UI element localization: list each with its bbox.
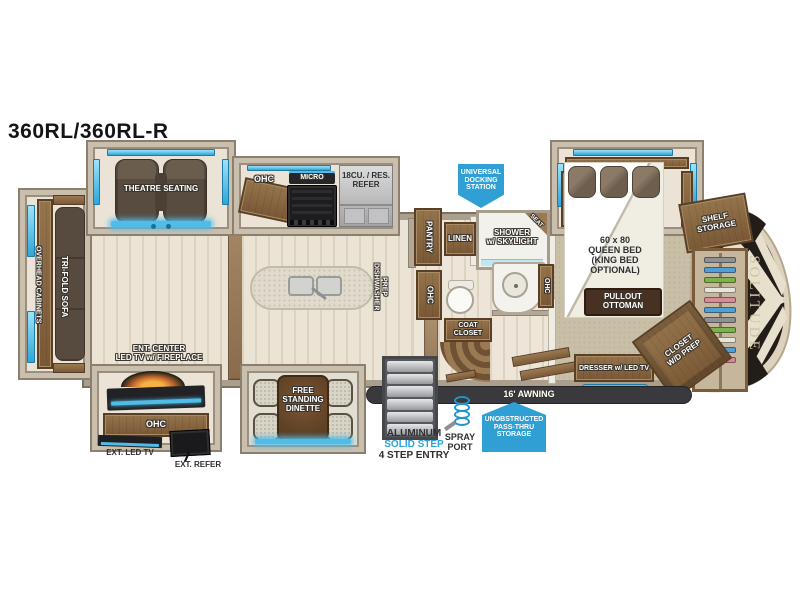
hall-ohc: OHC xyxy=(416,270,442,320)
dinette-label: FREE STANDING DINETTE xyxy=(271,387,335,413)
kitchen-slide: OHC MICRO 18CU. / RES. REFER xyxy=(234,158,398,234)
refer-split xyxy=(340,204,392,206)
micro-label: MICRO xyxy=(300,174,323,182)
shower: SEAT SHOWER w/ SKYLIGHT xyxy=(476,210,550,270)
hanger xyxy=(704,297,736,303)
bed-pillows xyxy=(568,166,660,198)
pillow xyxy=(600,166,628,198)
bath-drain xyxy=(514,284,518,288)
microwave: MICRO xyxy=(289,171,335,184)
step-tread xyxy=(387,412,433,423)
ext-led-tv-label: EXT. LED TV xyxy=(88,449,172,458)
docking-station-label: UNIVERSAL DOCKING STATION xyxy=(458,169,504,192)
bed-window-top xyxy=(573,149,673,156)
linen-cabinet: LINEN xyxy=(444,222,476,256)
refer-drawer xyxy=(368,208,389,224)
vanity-ohc-label: OHC xyxy=(542,278,550,294)
hanger xyxy=(704,307,736,313)
theatre-slide: THEATRE SEATING xyxy=(88,142,234,234)
dinette-slide: FREE STANDING DINETTE xyxy=(242,366,364,452)
passthru-storage-label: UNOBSTRUCTED PASS-THRU STORAGE xyxy=(482,416,546,439)
theatre-seating-label: THEATRE SEATING xyxy=(99,185,223,194)
theatre-opening-glow xyxy=(111,221,211,227)
cupholder xyxy=(151,224,156,229)
shelf-storage-label: SHELF STORAGE xyxy=(695,211,737,235)
step-tread xyxy=(387,399,433,410)
spray-port-label: SPRAY PORT xyxy=(436,432,484,452)
sink-left xyxy=(288,276,314,296)
floorplan: OVERHEAD CABINETS TRI-FOLD SOFA THEATRE … xyxy=(0,0,800,600)
linen-label: LINEN xyxy=(448,235,472,244)
hall-ohc-label: OHC xyxy=(425,286,434,304)
theatre-window-right xyxy=(222,159,229,205)
theatre-window-left xyxy=(93,159,100,205)
pillow xyxy=(568,166,596,198)
stove xyxy=(287,185,337,227)
step-tread xyxy=(387,374,433,385)
closet-wd-label: CLOSET W/D PREP xyxy=(661,331,703,368)
dinette-opening-glow xyxy=(255,439,351,444)
hanger xyxy=(704,317,736,323)
pantry: PANTRY xyxy=(414,208,442,266)
toilet xyxy=(446,280,476,316)
kitchen-island xyxy=(250,266,374,310)
rear-sofa-slide: OVERHEAD CABINETS TRI-FOLD SOFA xyxy=(20,190,90,378)
step-tread xyxy=(387,386,433,397)
pullout-ottoman-label: PULLOUT OTTOMAN xyxy=(603,293,643,311)
stove-grate xyxy=(292,190,332,216)
fireplace xyxy=(121,371,185,387)
stove-knobs xyxy=(290,220,334,225)
hanger xyxy=(704,277,736,283)
tv-screen xyxy=(111,398,201,405)
hanger xyxy=(704,267,736,273)
ext-refer-label: EXT. REFER xyxy=(158,461,238,470)
dishwasher-prep-label: DISHWASHER PREP xyxy=(372,252,394,322)
tri-fold-sofa-label: TRI-FOLD SOFA xyxy=(59,227,81,347)
spray-port-icon xyxy=(452,396,472,430)
ent-ohc-label: OHC xyxy=(146,420,166,430)
pantry-label: PANTRY xyxy=(424,221,433,253)
passthru-storage-badge: UNOBSTRUCTED PASS-THRU STORAGE xyxy=(482,402,546,452)
dresser-label: DRESSER w/ LED TV xyxy=(576,365,652,373)
coat-closet-label: COAT CLOSET xyxy=(454,322,482,337)
solitude-logo: SOLITUDE xyxy=(746,255,762,352)
page-title: 360RL/360RL-R xyxy=(8,120,169,144)
queen-bed-label: 60 x 80 QUEEN BED (KING BED OPTIONAL) xyxy=(569,235,661,275)
coat-closet: COAT CLOSET xyxy=(444,318,492,342)
docking-station-badge: UNIVERSAL DOCKING STATION xyxy=(458,164,504,208)
step-tread xyxy=(387,361,433,372)
dresser: DRESSER w/ LED TV xyxy=(574,354,654,382)
shower-label: SHOWER w/ SKYLIGHT xyxy=(481,229,543,247)
hanger xyxy=(704,287,736,293)
awning-label: 16' AWNING xyxy=(503,390,554,400)
pillow xyxy=(632,166,660,198)
refrigerator: 18CU. / RES. REFER xyxy=(339,165,393,227)
cupholder xyxy=(166,224,171,229)
ent-center-label: ENT. CENTER LED TV w/ FIREPLACE xyxy=(94,345,224,363)
dinette-chair xyxy=(325,413,353,441)
kitchen-ohc-label: OHC xyxy=(243,175,285,185)
ext-led-tv xyxy=(98,435,162,448)
refer-drawer xyxy=(344,208,365,224)
overhead-cabinets-label: OVERHEAD CABINETS xyxy=(34,207,54,363)
hanger xyxy=(704,257,736,263)
ext-tv-screen xyxy=(101,442,159,447)
bath-sink xyxy=(502,272,528,298)
sofa-trim-top xyxy=(53,195,85,205)
theatre-window-top xyxy=(107,149,215,156)
tv xyxy=(107,385,206,410)
vanity-ohc: OHC xyxy=(538,264,554,308)
pullout-ottoman: PULLOUT OTTOMAN xyxy=(584,288,662,316)
toilet-bowl xyxy=(446,286,474,314)
refer-label: 18CU. / RES. REFER xyxy=(341,172,391,190)
sofa-trim-bottom xyxy=(53,363,85,373)
